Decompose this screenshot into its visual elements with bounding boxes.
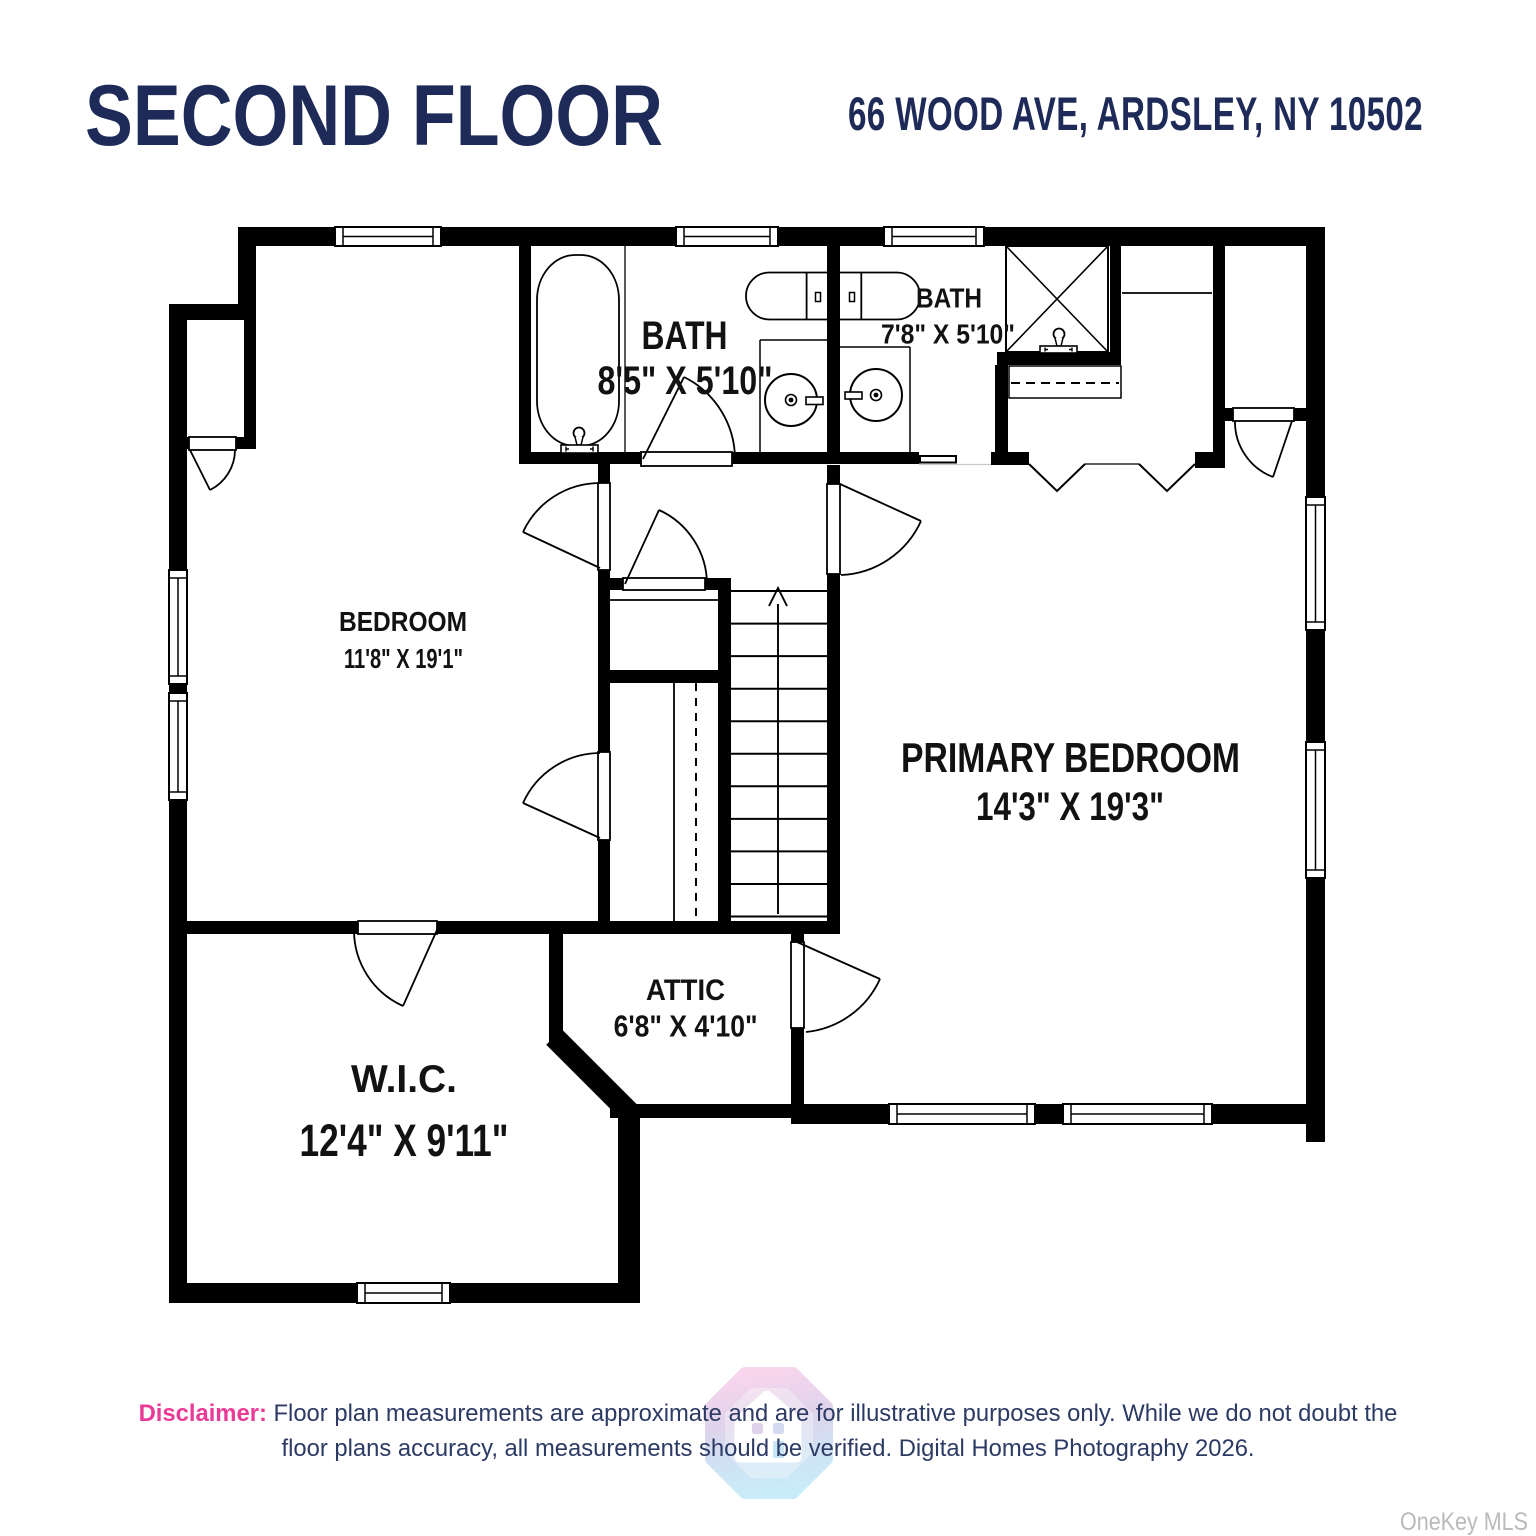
svg-text:Disclaimer: Floor plan measure: Disclaimer: Floor plan measurements are … — [139, 1400, 1398, 1427]
svg-text:BEDROOM: BEDROOM — [339, 606, 467, 637]
svg-text:floor plans accuracy, all meas: floor plans accuracy, all measurements s… — [281, 1435, 1254, 1462]
svg-text:12'4" X 9'11": 12'4" X 9'11" — [300, 1115, 509, 1166]
svg-text:OneKey MLS: OneKey MLS — [1400, 1508, 1528, 1536]
svg-text:BATH: BATH — [916, 283, 982, 314]
svg-text:W.I.C.: W.I.C. — [351, 1058, 457, 1101]
svg-text:BATH: BATH — [642, 314, 728, 358]
svg-text:8'5" X 5'10": 8'5" X 5'10" — [598, 359, 773, 403]
svg-text:66 WOOD AVE, ARDSLEY, NY 10502: 66 WOOD AVE, ARDSLEY, NY 10502 — [848, 87, 1423, 140]
svg-text:PRIMARY BEDROOM: PRIMARY BEDROOM — [901, 734, 1240, 781]
svg-text:14'3" X 19'3": 14'3" X 19'3" — [976, 785, 1164, 829]
svg-text:11'8" X 19'1": 11'8" X 19'1" — [344, 643, 463, 674]
svg-text:7'8" X 5'10": 7'8" X 5'10" — [881, 319, 1015, 350]
svg-text:SECOND FLOOR: SECOND FLOOR — [85, 68, 663, 164]
svg-text:6'8" X 4'10": 6'8" X 4'10" — [614, 1009, 758, 1044]
svg-text:ATTIC: ATTIC — [646, 974, 725, 1007]
